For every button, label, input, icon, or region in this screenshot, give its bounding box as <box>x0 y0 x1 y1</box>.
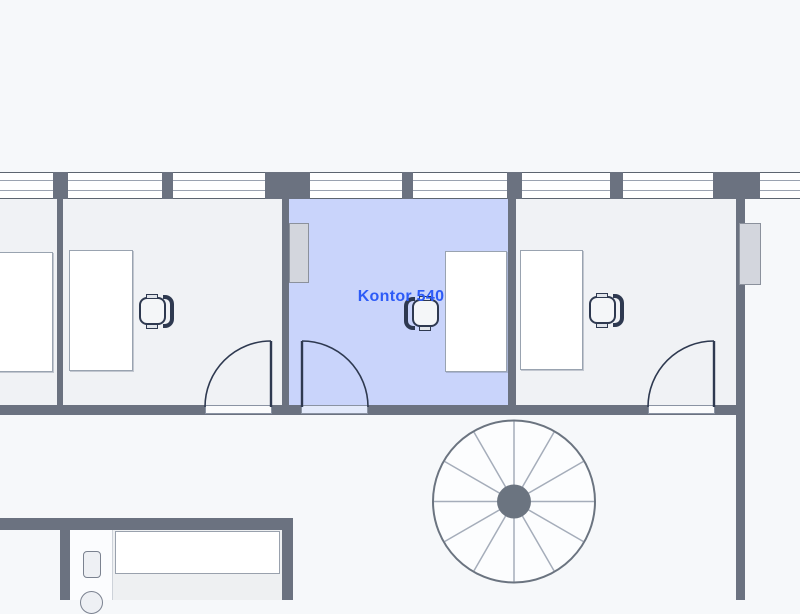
door <box>648 341 714 407</box>
floor-plan-canvas: { "floor_plan": { "highlighted_room": { … <box>0 0 800 600</box>
room-label: Kontor 540 <box>320 288 482 306</box>
door <box>205 341 271 407</box>
door <box>302 341 368 407</box>
spiral-staircase-icon <box>433 421 595 583</box>
